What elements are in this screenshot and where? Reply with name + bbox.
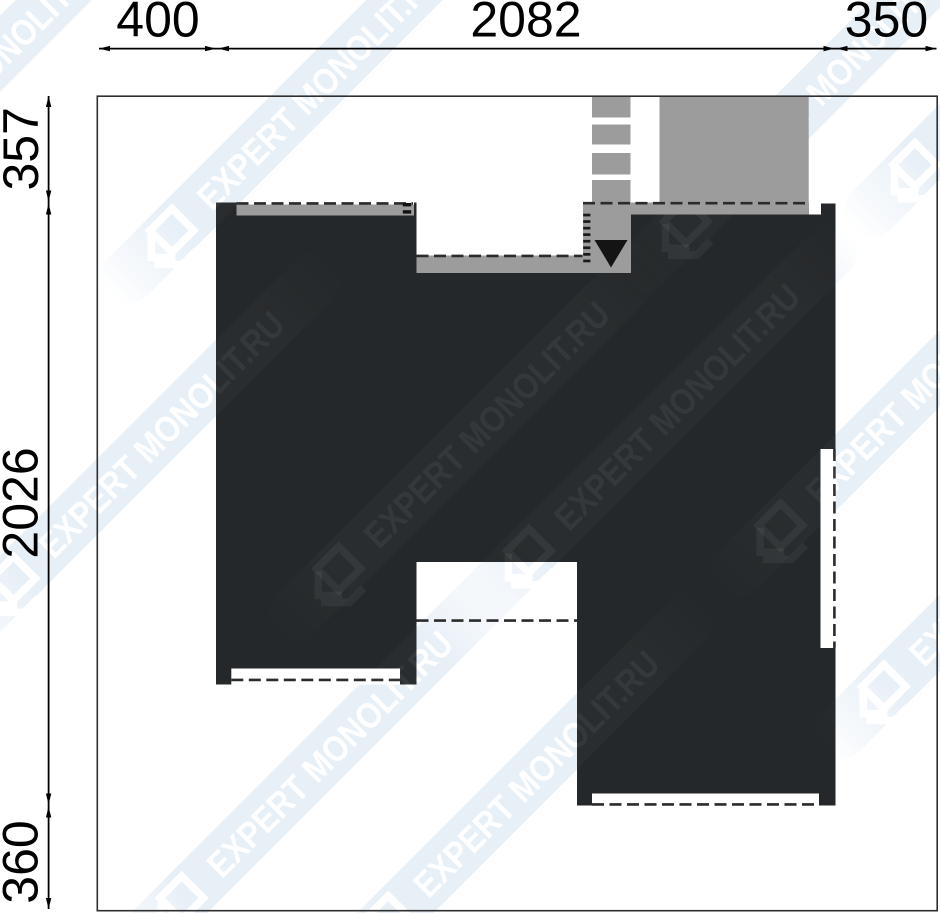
svg-text:360: 360 (0, 820, 49, 903)
svg-text:2082: 2082 (470, 0, 581, 48)
svg-text:357: 357 (0, 107, 49, 190)
svg-text:400: 400 (116, 0, 199, 48)
svg-text:2026: 2026 (0, 447, 49, 558)
svg-text:350: 350 (845, 0, 928, 48)
